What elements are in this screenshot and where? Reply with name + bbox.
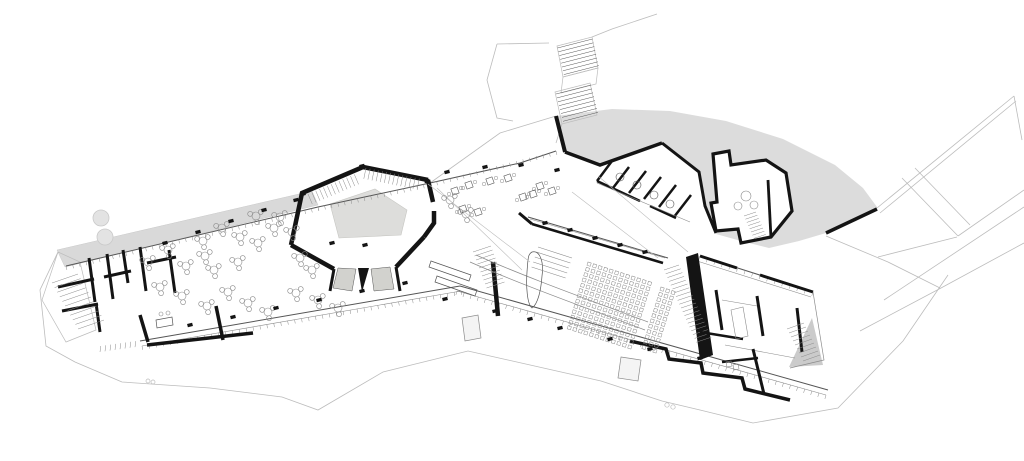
work-table — [465, 181, 473, 189]
facade-mullions — [212, 232, 213, 236]
facade-top-central — [430, 151, 556, 183]
stair-lower-steps — [559, 97, 594, 106]
facade-mullions — [562, 321, 563, 325]
stair-lower-steps — [560, 101, 595, 110]
side-stage-steps — [671, 280, 686, 285]
work-table — [451, 187, 459, 195]
column — [362, 243, 368, 248]
facade-mullions — [754, 375, 755, 379]
audience-seats — [624, 297, 628, 301]
facade-mullions — [412, 299, 413, 303]
audience-seats — [613, 334, 617, 338]
audience-seats — [584, 273, 588, 277]
cafe-table — [207, 250, 212, 255]
cafe-table — [152, 282, 157, 287]
audience-seats — [635, 301, 639, 305]
terrain-facet — [880, 101, 1016, 213]
courtyard-steps — [327, 186, 331, 196]
cafe-table — [199, 301, 204, 306]
sight-line — [437, 188, 522, 270]
facade-mullions — [245, 224, 246, 228]
courtyard-steps — [354, 174, 358, 184]
facade-mullions — [797, 387, 798, 391]
west-steps — [73, 311, 99, 320]
audience-seats — [591, 287, 595, 291]
stair-upper-steps — [560, 50, 595, 59]
facade-mullions — [397, 190, 398, 194]
facade-mullions — [343, 311, 344, 315]
courtyard-steps — [335, 183, 339, 193]
work-table — [515, 198, 519, 202]
audience-seats — [589, 274, 593, 278]
ramp-left — [333, 268, 356, 291]
cafe-table — [266, 223, 271, 228]
audience-seats-side — [660, 287, 664, 291]
facade-mullions — [126, 252, 127, 256]
stage-west-wall — [493, 262, 498, 316]
fixture — [733, 364, 739, 370]
piano — [650, 191, 658, 199]
tree — [93, 210, 109, 226]
stair-upper-steps — [558, 39, 593, 48]
audience-seats-side — [664, 312, 668, 316]
terrain-facet — [826, 236, 940, 288]
facade-mullions — [520, 309, 521, 313]
facade-mullions — [818, 393, 819, 397]
work-table — [512, 173, 516, 177]
facade-mullions — [619, 337, 620, 341]
audience-seats — [631, 276, 635, 280]
audience-seats — [613, 294, 617, 298]
facade-mullions — [179, 240, 180, 244]
facade-mullions — [426, 297, 427, 301]
cafe-table — [213, 274, 218, 279]
stage-curve — [476, 255, 648, 322]
audience-seats — [625, 315, 629, 319]
audience-seats — [595, 334, 599, 338]
audience-seats — [624, 280, 628, 284]
audience-seats — [591, 269, 595, 273]
west-steps — [60, 288, 86, 297]
work-table — [482, 207, 486, 211]
audience-seats-side — [666, 306, 670, 310]
facade-mullions — [782, 383, 783, 387]
audience-seats — [567, 326, 571, 330]
work-table — [500, 179, 504, 183]
cafe-table — [209, 300, 214, 305]
cafe-table — [147, 266, 152, 271]
audience-seats — [602, 290, 606, 294]
column — [444, 170, 450, 175]
audience-seats — [616, 324, 620, 328]
audience-seats — [605, 303, 609, 307]
facade-mullions — [172, 241, 173, 245]
terrain-facet — [884, 207, 1024, 300]
audience-seats — [575, 299, 579, 303]
audience-seats — [634, 306, 638, 310]
facade-mullions — [516, 161, 517, 165]
facade-mullions — [99, 258, 100, 262]
audience-seats — [633, 288, 637, 292]
stair-upper-steps — [561, 54, 596, 63]
path-west-edge — [487, 44, 513, 121]
cafe-table — [449, 204, 454, 209]
audience-seats — [602, 273, 606, 277]
audience-seats — [635, 283, 639, 287]
dressing-wall — [716, 290, 722, 330]
facade-mullions — [315, 316, 316, 320]
audience-seats-side — [652, 331, 656, 335]
bench — [429, 261, 471, 281]
cafe-table — [257, 247, 262, 252]
facade-mullions — [132, 250, 133, 254]
audience-seats — [590, 292, 594, 296]
site-marker — [151, 380, 155, 384]
cafe-table — [232, 232, 237, 237]
facade-mullions — [825, 395, 826, 399]
audience-seats-side — [658, 333, 662, 337]
work-table — [459, 205, 467, 213]
audience-seats — [584, 331, 588, 335]
facade-mullions — [239, 329, 240, 333]
audience-seats — [579, 306, 583, 310]
work-table — [474, 208, 482, 216]
courtyard-steps — [343, 179, 347, 189]
audience-seats-side — [642, 345, 646, 349]
audience-seats — [612, 299, 616, 303]
side-stage-steps — [667, 273, 682, 278]
work-table — [529, 190, 537, 198]
facade-mullions — [185, 238, 186, 242]
audience-seats — [578, 311, 582, 315]
audience-seats-side — [665, 289, 669, 293]
cafe-table — [273, 232, 278, 237]
facade-mullions — [704, 361, 705, 365]
facade-mullions — [477, 297, 478, 301]
courtyard-wall — [424, 211, 434, 237]
cafe-table — [230, 257, 235, 262]
ne-wall — [700, 256, 737, 268]
audience-seats — [595, 294, 599, 298]
facade-mullions — [350, 310, 351, 314]
courtyard-steps — [316, 191, 320, 201]
facade-mullions — [272, 218, 273, 222]
work-table — [544, 181, 548, 185]
stage-stair — [475, 250, 493, 256]
facade-mullions — [291, 213, 292, 217]
side-stage-steps — [664, 265, 679, 270]
west-steps — [52, 274, 78, 283]
facade-mullions — [305, 210, 306, 214]
sw-wall — [147, 333, 253, 345]
ne-edge-ticks — [744, 270, 745, 274]
audience-seats — [625, 274, 629, 278]
cafe-table — [247, 307, 252, 312]
gallery-rows — [538, 247, 572, 258]
cafe-table — [260, 237, 265, 242]
site-marker — [665, 403, 669, 407]
audience-seats — [628, 287, 632, 291]
ramp-right — [371, 267, 394, 291]
audience-seats — [581, 301, 585, 305]
cafe-table — [250, 297, 255, 302]
terrain-facet — [860, 243, 1024, 331]
dressing-wall — [722, 358, 758, 362]
audience-seats — [605, 320, 609, 324]
cafe-table — [310, 295, 315, 300]
se-stair — [787, 323, 804, 329]
band-edge — [597, 183, 690, 222]
audience-seats — [589, 315, 593, 319]
facade-mullions — [789, 385, 790, 389]
dressing-line — [725, 345, 795, 358]
audience-seats-side — [668, 301, 672, 305]
audience-seats — [636, 278, 640, 282]
facade-mullions — [119, 254, 120, 258]
cafe-table — [162, 281, 167, 286]
courtyard-steps — [347, 178, 351, 188]
audience-seats — [607, 274, 611, 278]
facade-mullions — [440, 295, 441, 299]
facade-mullions — [392, 303, 393, 307]
audience-seats-side — [661, 322, 665, 326]
work-table — [486, 177, 494, 185]
audience-seats — [587, 262, 591, 266]
entrance-vestibule — [618, 357, 641, 381]
ridge-line — [592, 14, 657, 37]
audience-seats — [621, 290, 625, 294]
facade-mullions — [419, 298, 420, 302]
facade-mullions — [265, 219, 266, 223]
audience-seats — [644, 292, 648, 296]
side-stage-steps — [679, 299, 694, 304]
facade-mullions — [399, 302, 400, 306]
facade-mullions — [253, 327, 254, 331]
facade-mullions — [146, 247, 147, 251]
side-stage-steps — [666, 269, 681, 274]
column — [316, 298, 322, 303]
cafe-table — [298, 287, 303, 292]
audience-seats — [600, 336, 604, 340]
audience-seats — [628, 345, 632, 349]
audience-seats — [600, 278, 604, 282]
work-table — [447, 192, 451, 196]
side-stage-steps — [676, 292, 691, 297]
facade-mullions — [267, 324, 268, 328]
facade-mullions — [278, 216, 279, 220]
work-table — [504, 174, 512, 182]
facade-mullions — [152, 246, 153, 250]
facade-mullions — [711, 363, 712, 367]
facade-mullions — [112, 255, 113, 259]
audience-seats — [617, 283, 621, 287]
work-table — [548, 187, 556, 195]
column — [273, 306, 279, 311]
audience-seats — [618, 278, 622, 282]
audience-seats — [592, 304, 596, 308]
cafe-table — [240, 256, 245, 261]
work-table — [519, 193, 527, 201]
audience-seats-side — [647, 329, 651, 333]
terrace-triangle — [789, 318, 823, 367]
audience-seats — [627, 327, 631, 331]
band-partition — [613, 167, 629, 188]
audience-seats — [595, 276, 599, 280]
audience-seats — [588, 280, 592, 284]
facade-mullions — [329, 314, 330, 318]
bench — [435, 276, 477, 296]
audience-seats — [629, 281, 633, 285]
audience-seats — [611, 322, 615, 326]
cafe-table — [242, 231, 247, 236]
facade-mullions — [192, 237, 193, 241]
room-wall — [140, 315, 148, 342]
facade-mullions — [433, 296, 434, 300]
sw-steps — [100, 346, 101, 352]
audience-seats — [620, 273, 624, 277]
cafe-table — [184, 290, 189, 295]
facade-mullions — [302, 319, 303, 323]
audience-seats — [573, 327, 577, 331]
facade-mullions — [726, 367, 727, 371]
cafe-table — [197, 251, 202, 256]
audience-seats — [593, 281, 597, 285]
audience-seats — [630, 317, 634, 321]
side-stage-steps — [669, 276, 684, 281]
audience-seats — [616, 306, 620, 310]
audience-seats — [606, 297, 610, 301]
band-partition — [674, 195, 691, 217]
facade-mullions — [447, 293, 448, 297]
column — [359, 289, 365, 294]
facade-mullions — [308, 317, 309, 321]
audience-seats — [604, 285, 608, 289]
work-table — [536, 182, 544, 190]
audience-seats — [608, 310, 612, 314]
facade-mullions — [718, 365, 719, 369]
audience-seats — [574, 304, 578, 308]
cafe-table — [221, 232, 226, 237]
audience-seats-side — [657, 298, 661, 302]
facade-mullions — [406, 301, 407, 305]
audience-seats — [578, 329, 582, 333]
audience-seats — [584, 290, 588, 294]
audience-seats — [572, 310, 576, 314]
column — [230, 315, 236, 320]
cafe-table — [260, 307, 265, 312]
audience-seats — [582, 278, 586, 282]
cafe-table — [227, 296, 232, 301]
stair-upper-steps — [564, 66, 599, 75]
courtyard-wall — [396, 267, 400, 291]
side-stage-steps — [673, 284, 688, 289]
band-wall — [597, 181, 640, 201]
facade-mullions — [775, 381, 776, 385]
cafe-table — [292, 253, 297, 258]
facade-mullions — [747, 373, 748, 377]
audience-seats — [619, 313, 623, 317]
courtyard-steps — [339, 181, 343, 191]
audience-seats — [638, 313, 642, 317]
audience-seats — [623, 303, 627, 307]
facade-mullions — [733, 369, 734, 373]
facade-bottom-right — [460, 286, 828, 390]
audience-seats-side — [648, 324, 652, 328]
column — [697, 356, 703, 361]
audience-seats — [579, 289, 583, 293]
audience-seats — [609, 269, 613, 273]
audience-seats-side — [661, 305, 665, 309]
facade-mullions — [311, 209, 312, 213]
audience-seats — [639, 308, 643, 312]
audience-seats — [641, 302, 645, 306]
facade-mullions — [325, 206, 326, 210]
audience-seats — [626, 292, 630, 296]
column — [442, 297, 448, 302]
audience-seats — [597, 306, 601, 310]
room-wall — [140, 247, 146, 291]
facade-mullions — [556, 151, 557, 155]
audience-seats — [643, 297, 647, 301]
side-stage-steps — [674, 288, 689, 293]
audience-seats — [610, 287, 614, 291]
canopy-roof — [57, 191, 318, 267]
audience-seats — [630, 299, 634, 303]
work-table — [467, 204, 471, 208]
dressing-wall — [757, 296, 763, 336]
terrain-facet — [878, 237, 957, 257]
facade-mullions — [541, 315, 542, 319]
facade-mullions — [260, 326, 261, 330]
audience-seats — [585, 267, 589, 271]
cafe-table — [206, 310, 211, 315]
cafe-table — [160, 245, 165, 250]
terrain-facet — [902, 178, 958, 236]
band-partition — [629, 171, 646, 193]
cafe-table — [204, 260, 209, 265]
site-marker — [671, 405, 675, 409]
west-steps — [62, 292, 88, 301]
floor-plan-svg — [0, 0, 1024, 461]
terrain-facet — [1014, 96, 1022, 140]
courtyard-steps — [320, 189, 324, 199]
facade-mullions — [410, 187, 411, 191]
cafe-table — [230, 286, 235, 291]
stair-lower-steps — [558, 93, 593, 102]
dressing-furniture — [731, 307, 748, 339]
sw-steps — [120, 343, 121, 349]
facade-mullions — [683, 355, 684, 359]
cafe-table — [216, 264, 221, 269]
audience-seats — [599, 283, 603, 287]
cafe-table — [159, 291, 164, 296]
audience-seats — [600, 318, 604, 322]
cafe-table — [202, 245, 207, 250]
sw-steps — [135, 341, 136, 347]
facade-mullions — [548, 317, 549, 321]
stage-piano — [527, 252, 543, 308]
room-wall — [96, 303, 100, 332]
facade-mullions — [404, 189, 405, 193]
facade-mullions — [527, 311, 528, 315]
facade-mullions — [506, 305, 507, 309]
cafe-table — [284, 227, 289, 232]
facade-mullions — [142, 346, 143, 350]
reception-desk — [156, 317, 173, 328]
ramp-wedge — [358, 268, 369, 292]
gallery-rows — [533, 262, 567, 273]
facade-mullions — [463, 293, 464, 297]
